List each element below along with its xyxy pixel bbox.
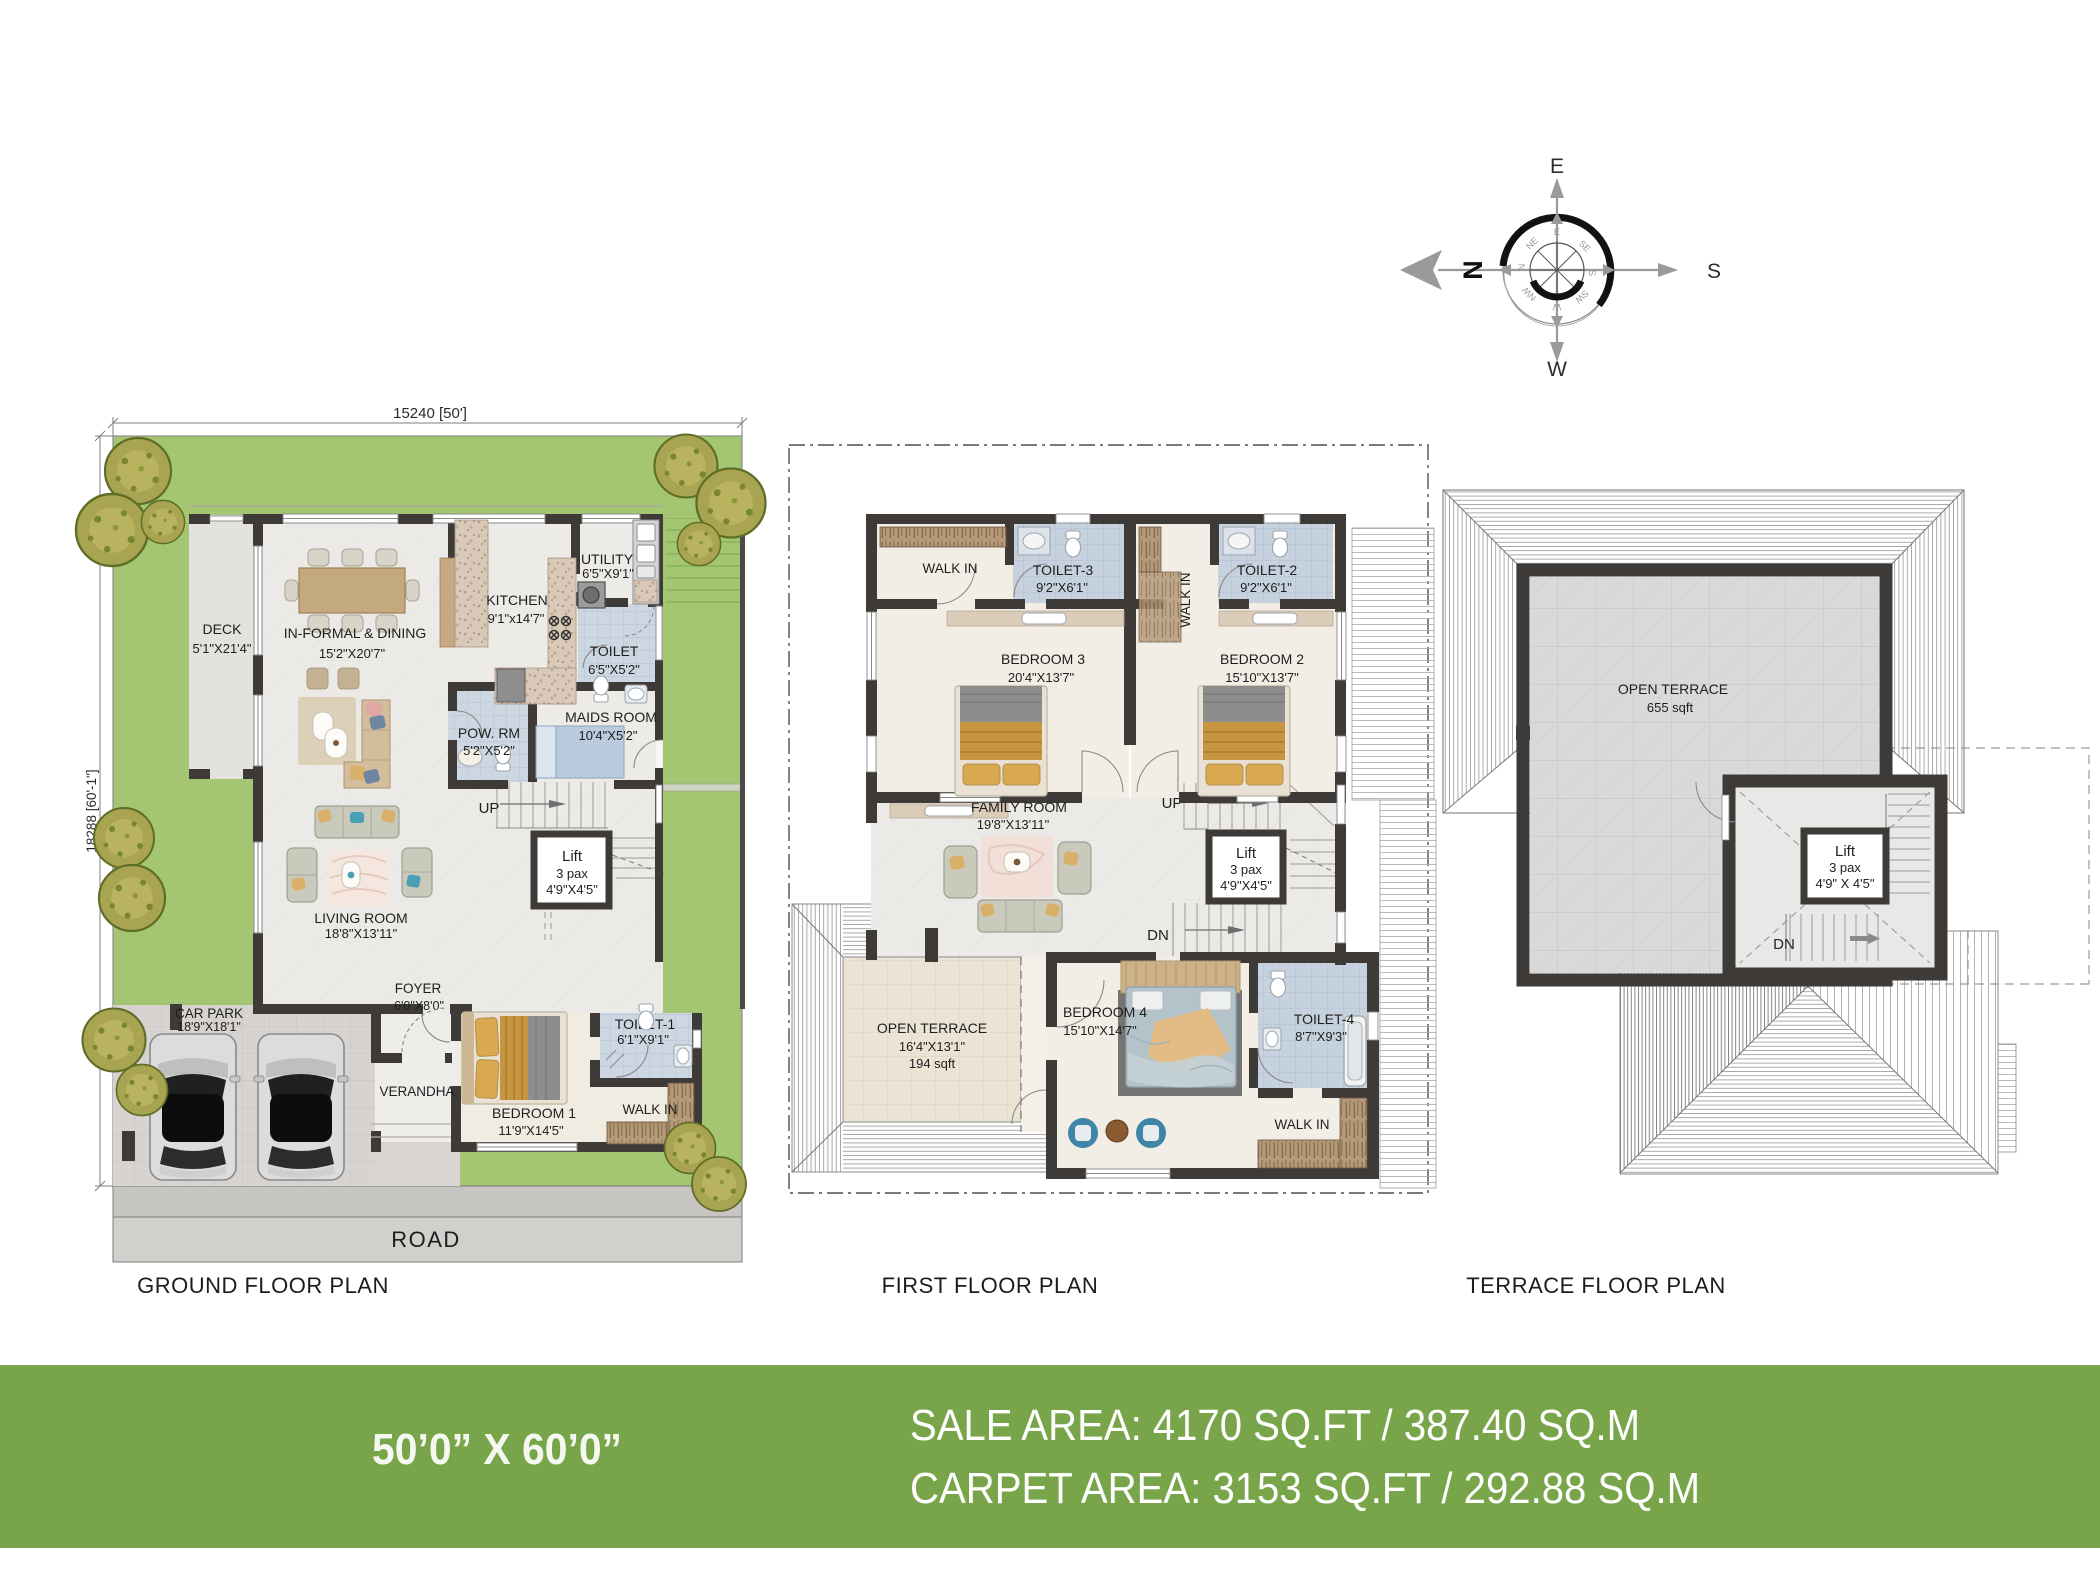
svg-text:ROAD: ROAD [391,1227,461,1252]
svg-text:6'0"X8'0": 6'0"X8'0" [394,999,444,1013]
svg-text:W: W [1547,358,1567,381]
svg-text:15'10"X13'7": 15'10"X13'7" [1225,670,1299,685]
svg-text:TOILET: TOILET [590,643,639,659]
svg-text:194 sqft: 194 sqft [909,1056,956,1071]
svg-text:WALK IN: WALK IN [622,1102,677,1117]
svg-text:5'2"X5'2": 5'2"X5'2" [463,743,515,758]
svg-text:FIRST FLOOR PLAN: FIRST FLOOR PLAN [882,1273,1099,1298]
svg-text:Lift: Lift [1236,845,1257,862]
svg-text:S: S [1707,260,1721,283]
svg-text:DN: DN [1773,936,1795,953]
svg-text:20'4"X13'7": 20'4"X13'7" [1008,670,1075,685]
svg-text:S: S [1587,270,1597,276]
svg-text:6'1"X9'1": 6'1"X9'1" [617,1032,669,1047]
svg-text:15240 [50']: 15240 [50'] [393,405,467,422]
svg-text:15'10"X14'7": 15'10"X14'7" [1063,1023,1137,1038]
svg-text:UTILITY: UTILITY [581,551,634,567]
svg-text:8'7"X9'3": 8'7"X9'3" [1295,1029,1347,1044]
svg-text:4'9"X4'5": 4'9"X4'5" [546,882,598,897]
svg-text:TERRACE FLOOR PLAN: TERRACE FLOOR PLAN [1466,1273,1726,1298]
svg-text:BEDROOM 1: BEDROOM 1 [492,1105,576,1121]
svg-text:15'2"X20'7": 15'2"X20'7" [319,646,386,661]
svg-text:6'5"X5'2": 6'5"X5'2" [588,662,640,677]
svg-text:DN: DN [1147,927,1169,944]
svg-text:WALK IN: WALK IN [922,561,977,576]
svg-text:Lift: Lift [562,848,583,865]
svg-text:TOILET-2: TOILET-2 [1237,562,1298,578]
svg-text:FOYER: FOYER [395,981,442,996]
svg-text:655 sqft: 655 sqft [1647,700,1694,715]
svg-text:4'9"X4'5": 4'9"X4'5" [1220,878,1272,893]
svg-text:3 pax: 3 pax [1829,860,1861,875]
svg-text:POW. RM: POW. RM [458,725,520,741]
svg-text:5'1"X21'4": 5'1"X21'4" [192,641,251,656]
svg-text:OPEN TERRACE: OPEN TERRACE [877,1020,987,1036]
svg-text:DECK: DECK [203,621,243,637]
svg-text:N: N [1458,260,1488,280]
svg-text:KITCHEN: KITCHEN [486,592,547,608]
svg-text:18'9"X18'1": 18'9"X18'1" [177,1020,241,1034]
svg-text:E: E [1554,227,1560,237]
svg-text:CAR PARK: CAR PARK [175,1006,243,1021]
svg-text:CARPET AREA: 3153 SQ.FT / 292.: CARPET AREA: 3153 SQ.FT / 292.88 SQ.M [910,1464,1700,1513]
svg-text:IN-FORMAL & DINING: IN-FORMAL & DINING [284,625,427,641]
svg-text:W: W [1552,302,1561,312]
svg-text:MAIDS ROOM: MAIDS ROOM [565,709,657,725]
svg-text:9'2"X6'1": 9'2"X6'1" [1036,580,1088,595]
svg-text:LIVING ROOM: LIVING ROOM [314,910,407,926]
svg-text:11'9"X14'5": 11'9"X14'5" [498,1123,564,1138]
svg-text:9'1"x14'7": 9'1"x14'7" [488,611,545,626]
svg-text:TOILET-3: TOILET-3 [1033,562,1094,578]
svg-text:3 pax: 3 pax [1230,862,1262,877]
svg-text:WALK IN: WALK IN [1274,1117,1329,1132]
svg-text:WALK IN: WALK IN [1178,572,1193,627]
svg-text:9'2"X6'1": 9'2"X6'1" [1240,580,1292,595]
svg-text:OPEN TERRACE: OPEN TERRACE [1618,681,1728,697]
svg-text:SALE AREA: 4170 SQ.FT / 387.40: SALE AREA: 4170 SQ.FT / 387.40 SQ.M [910,1401,1640,1450]
svg-text:TOILET-4: TOILET-4 [1294,1011,1355,1027]
svg-text:BEDROOM 2: BEDROOM 2 [1220,651,1304,667]
svg-text:50’0” X 60’0”: 50’0” X 60’0” [372,1425,622,1474]
svg-text:E: E [1550,155,1564,178]
svg-text:FAMILY ROOM: FAMILY ROOM [971,799,1067,815]
svg-text:GROUND FLOOR PLAN: GROUND FLOOR PLAN [137,1273,389,1298]
svg-text:10'4"X5'2": 10'4"X5'2" [578,728,637,743]
svg-text:BEDROOM 3: BEDROOM 3 [1001,651,1085,667]
svg-text:18'8"X13'11": 18'8"X13'11" [325,926,398,941]
svg-text:6'5"X9'1": 6'5"X9'1" [582,566,634,581]
svg-text:3 pax: 3 pax [556,866,588,881]
svg-text:16'4"X13'1": 16'4"X13'1" [899,1039,966,1054]
svg-text:N: N [1517,264,1527,271]
svg-text:UP: UP [479,800,500,817]
svg-text:Lift: Lift [1835,843,1856,860]
svg-text:4'9" X 4'5": 4'9" X 4'5" [1815,876,1874,891]
svg-text:BEDROOM 4: BEDROOM 4 [1063,1004,1147,1020]
svg-text:19'8"X13'11": 19'8"X13'11" [977,817,1050,832]
svg-text:VERANDHA: VERANDHA [379,1084,454,1099]
